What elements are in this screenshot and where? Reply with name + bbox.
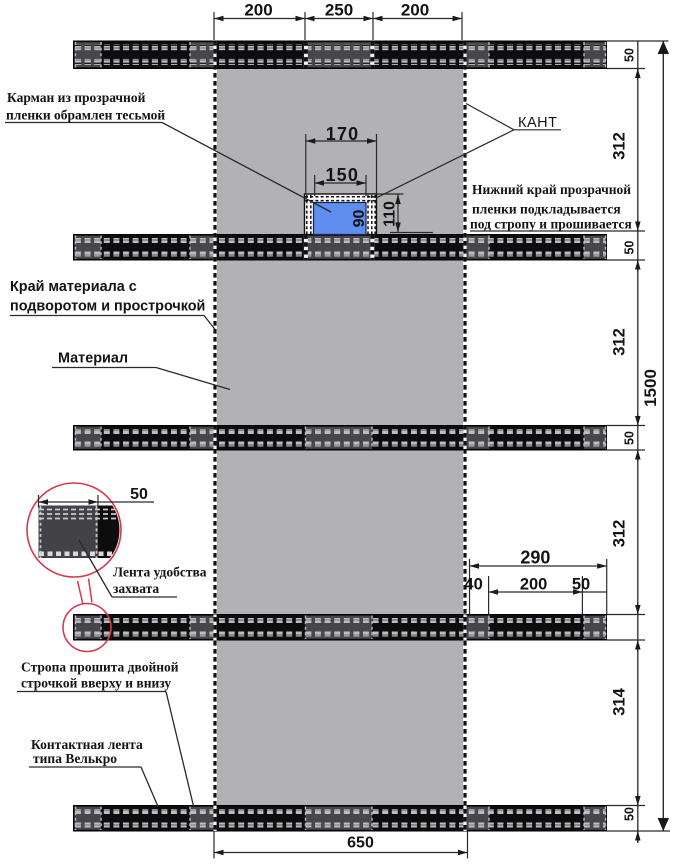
svg-text:строчкой вверху и внизу: строчкой вверху и внизу — [21, 676, 171, 691]
svg-text:200: 200 — [244, 1, 272, 20]
svg-text:пленки обрамлен тесьмой: пленки обрамлен тесьмой — [6, 108, 165, 123]
svg-text:312: 312 — [611, 132, 629, 160]
svg-text:312: 312 — [611, 520, 629, 548]
svg-text:250: 250 — [325, 1, 353, 20]
svg-text:50: 50 — [623, 807, 637, 821]
svg-text:типа Велькро: типа Велькро — [33, 751, 117, 766]
svg-text:290: 290 — [520, 548, 550, 568]
svg-text:200: 200 — [401, 1, 429, 20]
svg-text:650: 650 — [347, 835, 374, 852]
svg-text:1500: 1500 — [641, 369, 660, 407]
svg-text:Край материала с: Край материала с — [10, 279, 137, 295]
svg-text:50: 50 — [130, 486, 148, 503]
svg-text:50: 50 — [572, 576, 590, 594]
svg-text:Нижний край прозрачной: Нижний край прозрачной — [472, 182, 631, 197]
svg-text:захвата: захвата — [113, 581, 159, 596]
svg-text:312: 312 — [611, 328, 629, 356]
svg-text:200: 200 — [520, 576, 548, 594]
svg-text:КАНТ: КАНТ — [518, 115, 557, 131]
svg-text:под стропу и прошивается: под стропу и прошивается — [470, 217, 632, 232]
svg-text:Материал: Материал — [58, 351, 128, 367]
svg-text:пленки подкладывается: пленки подкладывается — [472, 202, 621, 217]
svg-text:Стропа прошита двойной: Стропа прошита двойной — [21, 660, 179, 675]
svg-text:Лента удобства: Лента удобства — [113, 565, 207, 580]
svg-text:110: 110 — [382, 201, 399, 227]
svg-text:314: 314 — [611, 687, 629, 715]
svg-text:Контактная лента: Контактная лента — [31, 737, 143, 752]
svg-text:50: 50 — [623, 48, 637, 62]
svg-text:50: 50 — [623, 241, 637, 255]
svg-text:Карман из прозрачной: Карман из прозрачной — [7, 90, 146, 105]
svg-text:170: 170 — [326, 124, 360, 144]
svg-text:40: 40 — [464, 576, 482, 594]
svg-text:150: 150 — [325, 165, 359, 185]
svg-text:50: 50 — [623, 431, 637, 445]
svg-text:90: 90 — [351, 210, 368, 228]
svg-text:подворотом и прострочкой: подворотом и прострочкой — [10, 299, 205, 315]
